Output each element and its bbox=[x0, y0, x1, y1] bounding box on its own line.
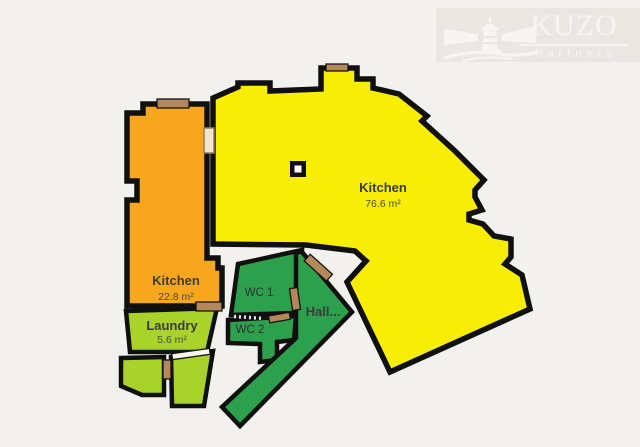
label-wc2: WC 2 bbox=[236, 324, 265, 336]
label-laundry: Laundry bbox=[146, 318, 198, 333]
door-kitchen-to-kitchen[interactable] bbox=[204, 128, 214, 153]
brand-divider bbox=[520, 44, 628, 46]
room-store-left[interactable] bbox=[121, 357, 164, 395]
door-kitchen-small-top[interactable] bbox=[157, 99, 189, 108]
area-kitchen-small: 22.8 m² bbox=[158, 291, 194, 303]
brand-banner: KUZO Partners bbox=[436, 8, 640, 62]
brand-name: KUZO bbox=[518, 9, 630, 43]
area-kitchen-large: 76.6 m² bbox=[365, 198, 401, 210]
column-pillar bbox=[290, 161, 306, 177]
label-kitchen-small: Kitchen bbox=[152, 273, 200, 288]
floorplan-page: Kitchen 76.6 m² Kitchen 22.8 m² Laundry … bbox=[0, 0, 640, 447]
door-store-left-to-right[interactable] bbox=[163, 360, 171, 379]
floorplan-canvas: Kitchen 76.6 m² Kitchen 22.8 m² Laundry … bbox=[0, 0, 640, 447]
door-kitchen-large-top[interactable] bbox=[326, 64, 348, 71]
area-laundry: 5.6 m² bbox=[157, 334, 187, 346]
label-wc1: WC 1 bbox=[245, 287, 274, 299]
label-hall: Hall... bbox=[306, 304, 341, 319]
brand-wordmark: KUZO Partners bbox=[518, 9, 630, 61]
door-kitchen-to-laundry[interactable] bbox=[196, 302, 222, 311]
label-kitchen-large: Kitchen bbox=[359, 180, 407, 195]
brand-tagline: Partners bbox=[518, 48, 630, 61]
